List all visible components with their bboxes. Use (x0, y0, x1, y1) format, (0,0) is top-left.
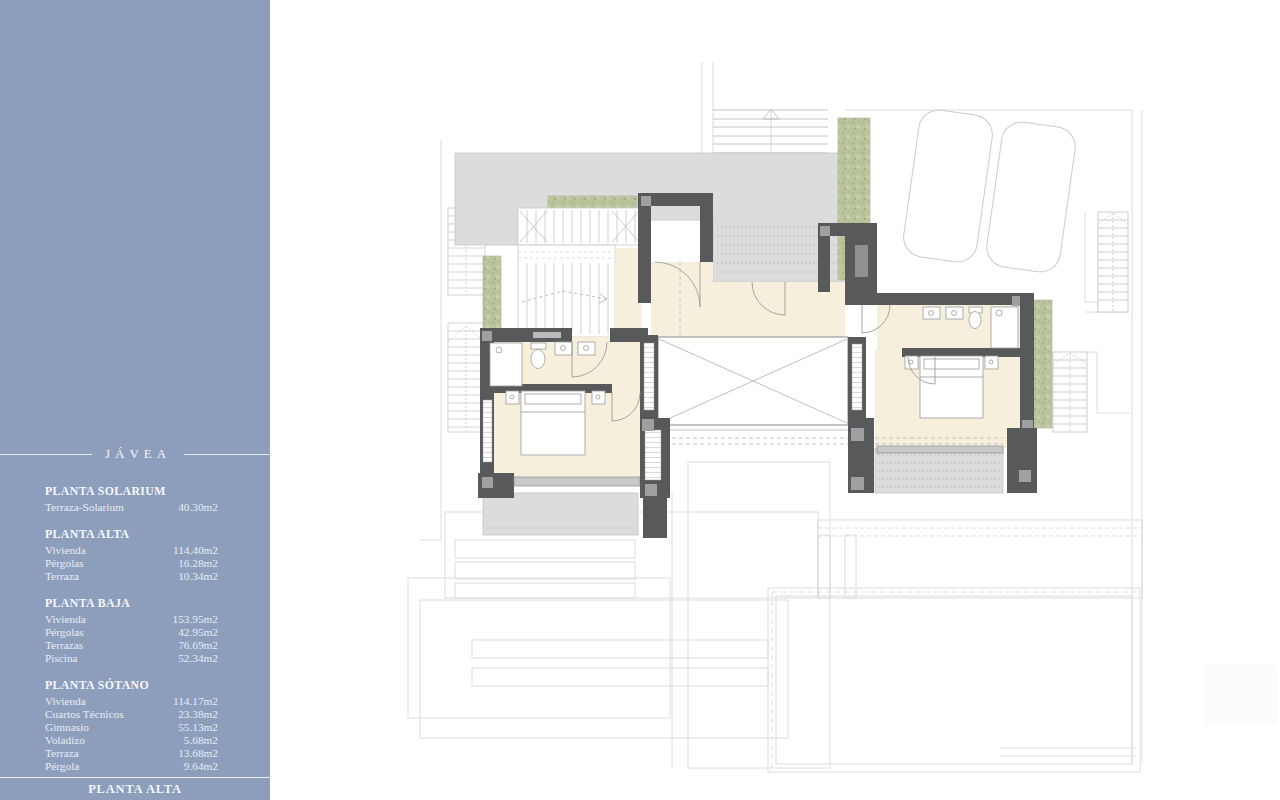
wall-pillar-cap (641, 196, 651, 206)
pergola-plank (472, 640, 768, 658)
sink-drain-icon (561, 346, 566, 351)
pool-inner-outline (776, 596, 1132, 764)
toilet-right (969, 312, 981, 329)
window-void-left-lower (645, 430, 661, 480)
stair2-boundary (1087, 352, 1130, 413)
car-outline-2 (984, 120, 1078, 275)
parking (901, 108, 1078, 275)
area-label: Terraza (45, 747, 79, 760)
floor-name-footer: PLANTA ALTA (0, 782, 270, 797)
footer-rule (0, 777, 270, 778)
pool-dashed-edge (772, 592, 1136, 768)
pergola-plank (472, 668, 768, 686)
area-row: Pérgolas 16.28m2 (45, 557, 218, 570)
lower-terrace-outline2 (420, 600, 788, 738)
area-label: Pérgola (45, 760, 79, 773)
wall-foyer-left (638, 193, 651, 303)
right-court-bar (845, 535, 856, 598)
shower-drain-icon (496, 347, 502, 353)
area-label: Cuartos Técnicos (45, 708, 124, 721)
bed-pillow (525, 394, 581, 404)
window-void-right (852, 344, 862, 410)
shower-left (490, 343, 522, 386)
area-label: Pérgolas (45, 626, 84, 639)
sink-drain-icon (929, 311, 934, 316)
wall-bathroom-right-top (845, 293, 1024, 305)
shower-drain-icon (996, 310, 1002, 316)
area-value: 23.38m2 (178, 708, 218, 721)
section-heading: PLANTA ALTA (45, 527, 218, 542)
watermark (1205, 665, 1277, 725)
wall-pillar-cap (851, 428, 864, 441)
bed-pillow (924, 359, 979, 369)
wall-block-inset (855, 245, 868, 277)
area-row: Cuartos Técnicos 23.38m2 (45, 708, 218, 721)
wall-pillar-cap (482, 477, 493, 488)
section-heading: PLANTA SÓTANO (45, 678, 218, 693)
lamp-icon (909, 360, 913, 364)
sink-drain-icon (584, 346, 589, 351)
area-value: 114.17m2 (173, 695, 218, 708)
area-value: 76.69m2 (178, 639, 218, 652)
area-value: 40.30m2 (178, 501, 218, 514)
area-label: Pérgolas (45, 557, 84, 570)
floor-plan (270, 0, 1280, 800)
sidebar: JÁVEA PLANTA SOLARIUM Terraza-Solarium 4… (0, 0, 270, 800)
right-court-dashes (818, 528, 1142, 536)
area-value: 13.68m2 (178, 747, 218, 760)
area-row: Vivienda 114.40m2 (45, 544, 218, 557)
wall-pillar-cap (482, 331, 492, 341)
window-sill-bedroom-right (877, 446, 1003, 453)
area-label: Terraza-Solarium (45, 501, 124, 514)
window-west (483, 400, 492, 462)
wall-pillar-cap (1019, 470, 1031, 482)
area-label: Gimnasio (45, 721, 89, 734)
lamp-icon (989, 360, 993, 364)
area-value: 114.40m2 (173, 544, 218, 557)
pergola-plank (455, 540, 635, 558)
lamp-icon (596, 395, 600, 399)
area-label: Vivienda (45, 695, 86, 708)
planter-east (1033, 300, 1052, 428)
lower-terrace-outline3 (408, 578, 670, 718)
property-line-left (420, 140, 441, 540)
area-label: Terrazas (45, 639, 83, 652)
toilet-left (531, 350, 545, 369)
stair-upper-flight (518, 208, 642, 245)
area-label: Piscina (45, 652, 78, 665)
area-value: 153.95m2 (172, 613, 218, 626)
area-row: Vivienda 114.17m2 (45, 695, 218, 708)
wall-pillar-cap (642, 419, 654, 431)
area-label: Vivienda (45, 544, 86, 557)
area-tables: PLANTA SOLARIUM Terraza-Solarium 40.30m2… (45, 484, 218, 786)
section-planta-solarium: PLANTA SOLARIUM Terraza-Solarium 40.30m2 (45, 484, 218, 514)
area-row: Terraza-Solarium 40.30m2 (45, 501, 218, 514)
pergola-plank (455, 583, 635, 598)
area-row: Pérgolas 42.95m2 (45, 626, 218, 639)
area-value: 10.34m2 (178, 570, 218, 583)
title-rule-right (184, 454, 270, 455)
area-row: Terraza 13.68m2 (45, 747, 218, 760)
entry-court-lines (702, 62, 713, 153)
sink-drain-icon (952, 311, 957, 316)
project-title-row: JÁVEA (0, 446, 270, 462)
area-value: 42.95m2 (178, 626, 218, 639)
floor-foyer-south (651, 262, 713, 337)
section-heading: PLANTA SOLARIUM (45, 484, 218, 499)
area-label: Terraza (45, 570, 79, 583)
shower-right (991, 307, 1018, 348)
area-label: Voladizo (45, 734, 85, 747)
section-planta-alta: PLANTA ALTA Vivienda 114.40m2 Pérgolas 1… (45, 527, 218, 583)
section-planta-baja: PLANTA BAJA Vivienda 153.95m2 Pérgolas 4… (45, 596, 218, 665)
wall-bar-lower (643, 498, 667, 538)
area-row: Terraza 10.34m2 (45, 570, 218, 583)
pool-bottom-lines (1000, 748, 1136, 756)
area-value: 5.68m2 (184, 734, 218, 747)
section-heading: PLANTA BAJA (45, 596, 218, 611)
wall-sill (533, 332, 561, 338)
area-row: Terrazas 76.69m2 (45, 639, 218, 652)
area-value: 16.28m2 (178, 557, 218, 570)
entry-steps (713, 109, 828, 153)
area-value: 52.34m2 (178, 652, 218, 665)
floor-hall-west (615, 248, 642, 337)
area-value: 9.64m2 (184, 760, 218, 773)
section-planta-sotano: PLANTA SÓTANO Vivienda 114.17m2 Cuartos … (45, 678, 218, 773)
floor-plan-drawing (270, 0, 1280, 800)
window-void-left (644, 343, 654, 410)
area-row: Voladizo 5.68m2 (45, 734, 218, 747)
window-sill-bedroom-left (514, 477, 640, 486)
stair-lower-flight (518, 245, 615, 337)
terrace-left (483, 493, 638, 535)
area-row: Pérgola 9.64m2 (45, 760, 218, 773)
wall-post-se (1007, 428, 1037, 493)
wall-pillar-cap (645, 484, 657, 496)
area-row: Gimnasio 55.13m2 (45, 721, 218, 734)
planter-west (483, 256, 501, 332)
area-label: Vivienda (45, 613, 86, 626)
exterior-stairs-right (1053, 212, 1128, 432)
pergola-plank (455, 562, 635, 579)
area-row: Vivienda 153.95m2 (45, 613, 218, 626)
under-void-outline (688, 462, 830, 768)
title-rule-left (0, 454, 92, 455)
right-court-outline (818, 520, 1142, 598)
project-title: JÁVEA (105, 446, 171, 462)
wall-pillar-cap (851, 477, 864, 490)
car-outline-1 (901, 108, 995, 265)
area-value: 55.13m2 (178, 721, 218, 734)
wall-pillar-cap (820, 226, 830, 236)
right-court-bar (818, 535, 830, 598)
pool-outline (768, 588, 1140, 772)
wall-foyer-right (700, 206, 713, 262)
lamp-icon (510, 395, 514, 399)
area-row: Piscina 52.34m2 (45, 652, 218, 665)
toilet-tank-left (531, 343, 546, 349)
